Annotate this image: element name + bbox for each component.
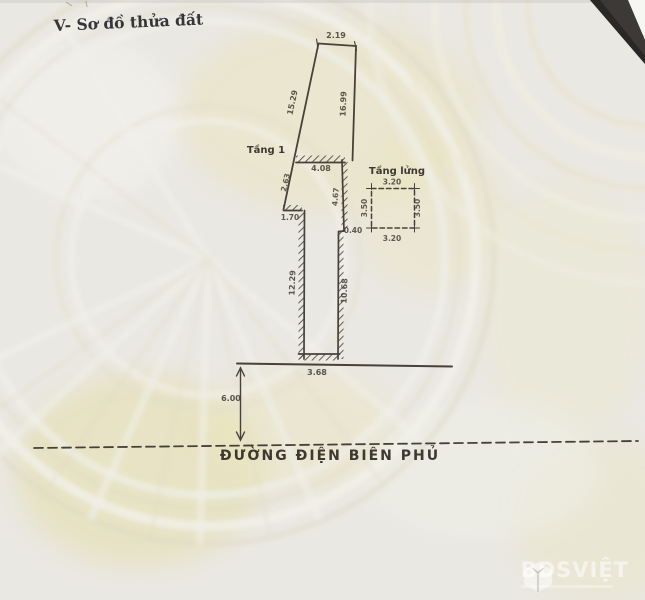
street-name: ĐƯỜNG ĐIỆN BIÊN PHỦ (220, 445, 440, 464)
dim-mezz-right: 3.50 (413, 199, 422, 218)
bdsviet-logo-icon (521, 560, 555, 594)
plot-diagram-canvas: V- Sơ đồ thửa đất (0, 0, 645, 600)
paper-background (0, 0, 645, 600)
mezzanine-label: Tầng lửng (369, 165, 425, 177)
dim-f1-left: 12.29 (288, 270, 298, 296)
scanned-land-plot-photo: V- Sơ đồ thửa đất (0, 0, 645, 600)
dim-mezz-top: 3.20 (383, 178, 402, 187)
dim-mezz-bottom: 3.20 (383, 234, 402, 243)
dim-road-setback: 6.00 (221, 394, 241, 403)
dim-mezz-left: 3.50 (360, 199, 369, 218)
dim-f1-notch: 1.70 (281, 213, 300, 222)
dim-top-width: 2.19 (326, 31, 346, 40)
dim-f1-bottom: 3.68 (307, 368, 327, 377)
dim-right-side: 16.99 (339, 91, 349, 117)
brand-watermark: BDSVIỆT (521, 560, 629, 588)
page-top-edge (0, 0, 645, 3)
dim-f1-right-upper: 4.67 (330, 187, 341, 206)
dim-f1-right-lower: 10.68 (340, 278, 350, 304)
dim-f1-step: 0.40 (344, 226, 363, 235)
dim-f1-top: 4.08 (311, 164, 331, 173)
floor1-label: Tầng 1 (247, 144, 285, 156)
